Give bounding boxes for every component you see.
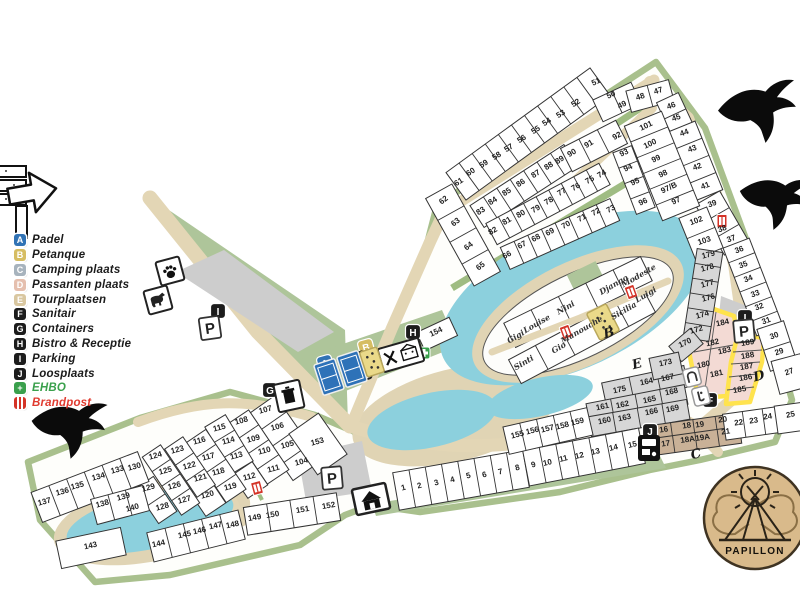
legend-badge-F: F — [14, 308, 26, 320]
plot-label: 19 — [695, 419, 706, 429]
legend-item-petanque: BPetanque — [14, 248, 131, 263]
legend-badge-A: A — [14, 234, 26, 246]
legend-label: Camping plaats — [32, 264, 120, 276]
plot-label: 18 — [682, 420, 693, 430]
legend-badge-D: D — [14, 279, 26, 291]
badge-H-icon: H — [406, 325, 421, 340]
legend-label: Passanten plaats — [32, 279, 129, 291]
legend-badge-I: I — [14, 353, 26, 365]
legend-label: Bistro & Receptie — [32, 338, 131, 350]
brandpost-icon — [14, 397, 26, 409]
legend-item-bistro-receptie: HBistro & Receptie — [14, 337, 131, 352]
legend-badge-H: H — [14, 338, 26, 350]
legend-item-brandpost: Brandpost — [14, 396, 131, 411]
legend-label: Tourplaatsen — [32, 294, 106, 306]
legend-item-tourplaatsen: ETourplaatsen — [14, 292, 131, 307]
legend-item-containers: GContainers — [14, 322, 131, 337]
papillon-logo: PAPILLON — [704, 467, 800, 569]
legend-item-passanten-plaats: DPassanten plaats — [14, 277, 131, 292]
psign-icon: P — [199, 316, 222, 341]
dog-icon — [143, 285, 172, 314]
svg-text:H: H — [409, 328, 416, 339]
legend-badge-+: + — [14, 382, 26, 394]
house-icon — [352, 483, 391, 516]
legend-label: Padel — [32, 234, 64, 246]
legend-label: Loosplaats — [32, 368, 95, 380]
legend-badge-J: J — [14, 368, 26, 380]
dump-icon — [638, 435, 660, 461]
legend: APadelBPetanqueCCamping plaatsDPassanten… — [14, 233, 131, 411]
legend-label: Parking — [32, 353, 76, 365]
legend-item-camping-plaats: CCamping plaats — [14, 263, 131, 278]
campground-map-page: ABHIIGFJPPP 6564636261605958575655545352… — [0, 0, 800, 600]
psign-icon: P — [321, 466, 343, 490]
trash-icon — [273, 380, 304, 413]
logo-text: PAPILLON — [725, 546, 784, 557]
legend-label: Containers — [32, 323, 94, 335]
plot-label: 24 — [763, 411, 774, 421]
legend-item-ehbo: +EHBO — [14, 381, 131, 396]
svg-text:P: P — [326, 470, 337, 488]
legend-badge-C: C — [14, 264, 26, 276]
legend-label: Sanitair — [32, 308, 76, 320]
legend-item-padel: APadel — [14, 233, 131, 248]
legend-badge-E: E — [14, 294, 26, 306]
legend-item-sanitair: FSanitair — [14, 307, 131, 322]
wash2-icon — [691, 385, 711, 406]
legend-label: Brandpost — [32, 397, 91, 409]
plot-label: 16 — [659, 424, 670, 434]
entrance-signpost — [0, 166, 60, 238]
legend-badge-G: G — [14, 323, 26, 335]
legend-label: EHBO — [32, 382, 66, 394]
legend-label: Petanque — [32, 249, 85, 261]
plot-label: 22 — [734, 417, 745, 427]
legend-item-parking: IParking — [14, 351, 131, 366]
swallow-icon — [718, 80, 796, 143]
plot-label: 23 — [749, 415, 760, 425]
plot-label: 20 — [718, 414, 729, 424]
plot-label: 21 — [721, 426, 732, 436]
legend-badge-B: B — [14, 249, 26, 261]
plot-label: 17 — [661, 438, 672, 448]
legend-item-loosplaats: JLoosplaats — [14, 366, 131, 381]
paw-icon — [155, 256, 184, 285]
